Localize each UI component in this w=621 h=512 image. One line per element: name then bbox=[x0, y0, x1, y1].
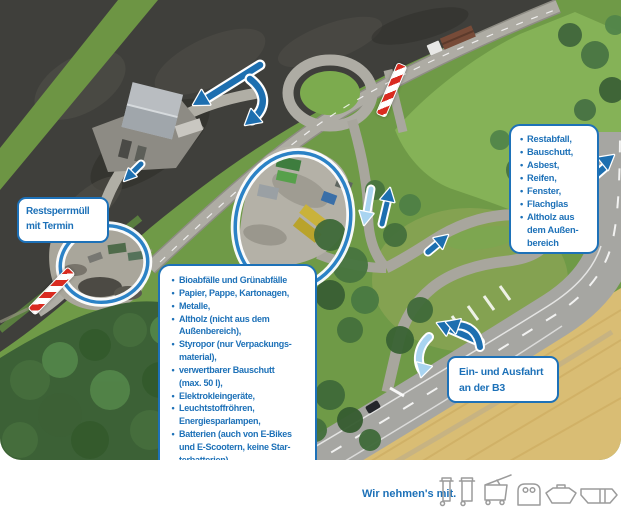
bullet-icon: • bbox=[167, 338, 179, 351]
bullet-icon: • bbox=[516, 211, 527, 224]
bullet-icon: • bbox=[516, 198, 527, 211]
accepted-item: • Metalle, bbox=[167, 300, 309, 313]
restricted-item: • Reifen, bbox=[516, 172, 593, 185]
exit-callout: Ein- und Ausfahrt an der B3 bbox=[447, 356, 559, 403]
bullet-icon: • bbox=[516, 172, 527, 185]
restricted-items-list: • Restabfall, • Bauschutt, • Asbest, • R… bbox=[516, 133, 593, 250]
bullet-icon: • bbox=[167, 428, 179, 441]
bullet-icon: • bbox=[516, 159, 527, 172]
accepted-item: • Altholz (nicht aus dem Außenbereich), bbox=[167, 313, 309, 339]
restricted-item: • Asbest, bbox=[516, 159, 593, 172]
container-icons bbox=[438, 465, 618, 507]
restricted-item: • Restabfall, bbox=[516, 133, 593, 146]
bullet-icon: • bbox=[167, 402, 179, 415]
bullet-icon: • bbox=[167, 287, 179, 300]
restricted-item: • Flachglas bbox=[516, 198, 593, 211]
exit-label: Ein- und Ausfahrt an der B3 bbox=[459, 365, 547, 397]
accepted-item: • Elektrokleingeräte, bbox=[167, 390, 309, 403]
rolloff-container-icon bbox=[580, 483, 618, 507]
accepted-item: • verwertbarer Bauschutt (max. 50 l), bbox=[167, 364, 309, 390]
waste-bin-large-icon bbox=[458, 475, 476, 507]
restricted-item: • Fenster, bbox=[516, 185, 593, 198]
restricted-item: • Bauschutt, bbox=[516, 146, 593, 159]
igloo-container-icon bbox=[516, 481, 542, 507]
appointment-label: Restsperrmüll mit Termin bbox=[26, 205, 100, 234]
footer: Wir nehmen's mit. bbox=[0, 460, 621, 512]
waste-bin-small-icon bbox=[438, 475, 455, 507]
skip-container-icon bbox=[545, 483, 577, 507]
accepted-item: • Styropor (nur Verpackungs- material), bbox=[167, 338, 309, 364]
restricted-items-callout: • Restabfall, • Bauschutt, • Asbest, • R… bbox=[509, 124, 599, 254]
bullet-icon: • bbox=[167, 274, 179, 287]
bullet-icon: • bbox=[516, 185, 527, 198]
accepted-item: • Papier, Pappe, Kartonagen, bbox=[167, 287, 309, 300]
bullet-icon: • bbox=[167, 313, 179, 326]
bullet-icon: • bbox=[516, 133, 527, 146]
bullet-icon: • bbox=[167, 390, 179, 403]
accepted-item: • Bioabfälle und Grünabfälle bbox=[167, 274, 309, 287]
bullet-icon: • bbox=[167, 364, 179, 377]
infographic-page: Restsperrmüll mit Termin • Bioabfälle un… bbox=[0, 0, 621, 512]
appointment-callout: Restsperrmüll mit Termin bbox=[17, 197, 109, 243]
bullet-icon: • bbox=[167, 300, 179, 313]
accepted-item: • Leuchtstoffröhren, Energiesparlampen, bbox=[167, 402, 309, 428]
wheeled-container-open-icon bbox=[479, 471, 513, 507]
bullet-icon: • bbox=[516, 146, 527, 159]
restricted-item: • Altholz aus dem Außen- bereich bbox=[516, 211, 593, 250]
